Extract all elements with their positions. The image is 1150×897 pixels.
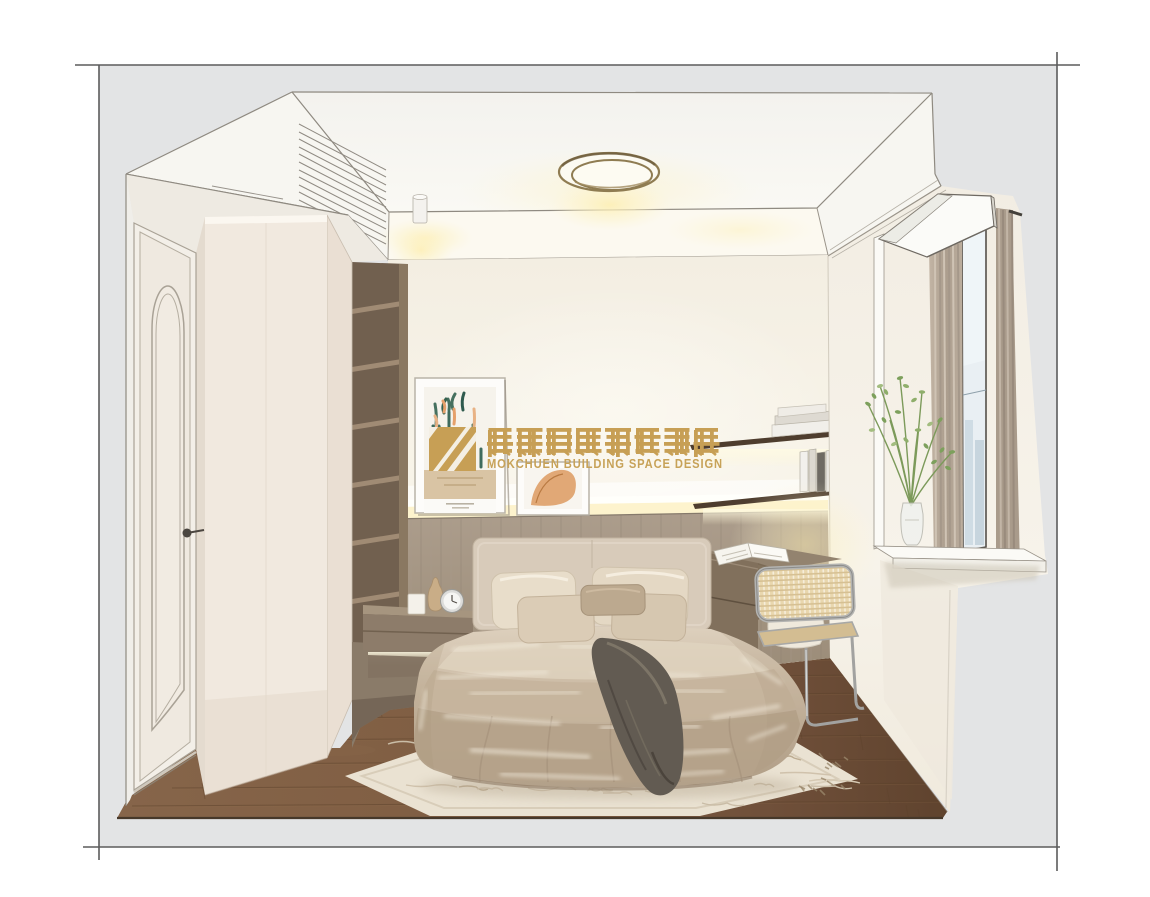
svg-text:MOKCHUEN BUILDING SPACE DESIGN: MOKCHUEN BUILDING SPACE DESIGN xyxy=(487,457,723,471)
